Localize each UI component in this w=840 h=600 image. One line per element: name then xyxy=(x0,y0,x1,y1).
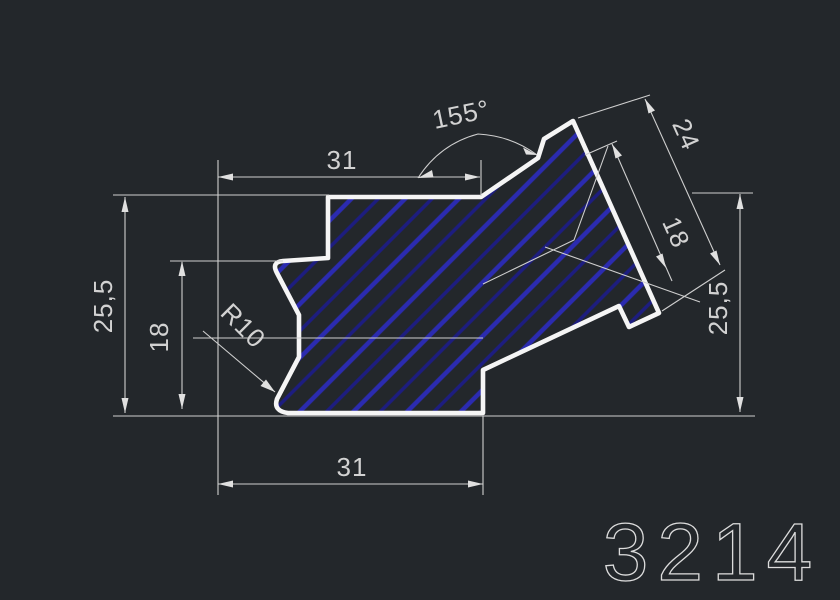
label-right-height: 25,5 xyxy=(703,281,733,336)
label-left-height: 25,5 xyxy=(88,279,118,334)
label-top-width: 31 xyxy=(327,145,358,175)
part-number: 3214 xyxy=(603,507,821,598)
cad-drawing: 31 31 25,5 18 25,5 24 18 xyxy=(0,0,840,600)
label-bottom-width: 31 xyxy=(337,452,368,482)
cad-viewport[interactable]: 31 31 25,5 18 25,5 24 18 xyxy=(0,0,840,600)
label-left-step-height: 18 xyxy=(144,322,174,353)
